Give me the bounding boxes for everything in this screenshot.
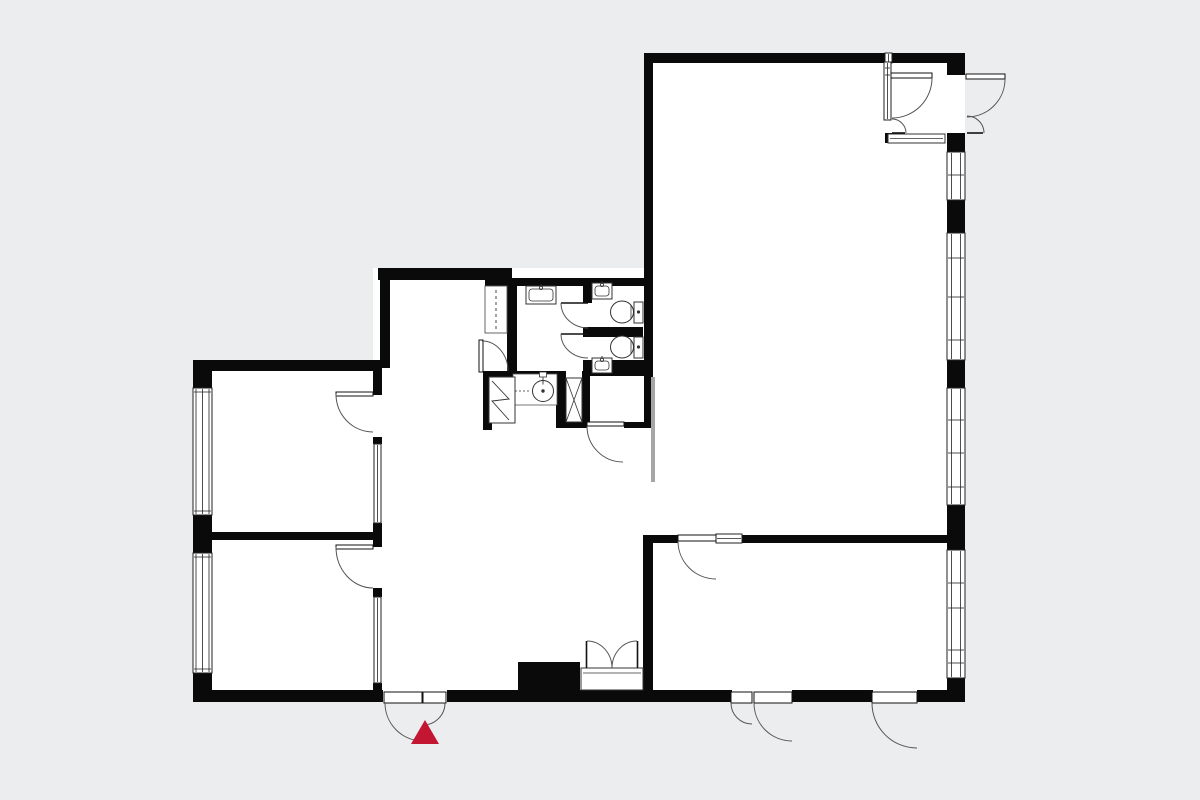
wall-hall-bottom-right bbox=[624, 422, 653, 428]
wall-dining-top-right bbox=[740, 535, 947, 543]
wall-leftrooms-bottom bbox=[193, 690, 382, 702]
wall-left-seg-2 bbox=[193, 515, 212, 553]
door-vestibule-big-leaf bbox=[891, 73, 932, 78]
door-left-room-bottom-leaf bbox=[336, 545, 373, 549]
wall-leftrooms-right-2 bbox=[373, 437, 382, 444]
wall-leftrooms-right-5 bbox=[373, 683, 382, 702]
wall-right-seg-5 bbox=[947, 505, 965, 550]
window-right-3 bbox=[947, 388, 965, 505]
sliding-door-panel bbox=[651, 377, 655, 482]
sink-wc2-basin bbox=[595, 361, 609, 370]
wall-leftrooms-right-1 bbox=[373, 371, 382, 395]
wall-shaft-left bbox=[556, 371, 566, 428]
window-right-2 bbox=[947, 233, 965, 360]
wall-dining-top-left bbox=[643, 535, 678, 543]
floor-plan bbox=[0, 0, 1200, 800]
wall-bottom-seg-3 bbox=[917, 690, 965, 702]
cupboard-body bbox=[581, 668, 643, 690]
wall-wc-divider bbox=[583, 327, 643, 337]
wall-right-seg-3 bbox=[947, 200, 965, 233]
floor-main-room bbox=[644, 53, 965, 702]
toilet-2-flush bbox=[637, 345, 640, 348]
wall-bottom-seg-1 bbox=[643, 690, 732, 702]
wall-leftrooms-divider bbox=[193, 532, 382, 540]
door-main-entrance-small-leaf bbox=[423, 692, 446, 703]
wall-hall-bottom-left bbox=[556, 422, 587, 428]
toilet-1-bowl bbox=[611, 301, 634, 323]
door-hall-leaf bbox=[587, 422, 624, 426]
wall-leftrooms-top bbox=[193, 360, 382, 371]
door-terrace2-leaf bbox=[872, 692, 917, 703]
door-side-entrance-big-leaf bbox=[966, 74, 1005, 79]
wall-right-seg-4 bbox=[947, 360, 965, 388]
sink-wc1-basin bbox=[595, 286, 609, 296]
wall-dining-left bbox=[643, 543, 653, 690]
wall-bath-top-thin bbox=[505, 278, 653, 286]
wall-shaft-right bbox=[582, 371, 590, 422]
door-dining-leaf bbox=[678, 535, 716, 541]
wall-left-seg-1 bbox=[193, 360, 212, 388]
door-terrace1-small-leaf bbox=[731, 692, 752, 703]
window-right-4 bbox=[947, 550, 965, 678]
sink-bathroom-basin bbox=[529, 289, 553, 301]
wall-leftrooms-right-4 bbox=[373, 588, 382, 597]
wall-bottom-seg-2 bbox=[792, 690, 873, 702]
laundry-basin-tap-icon bbox=[540, 372, 547, 377]
floor-left-rooms bbox=[193, 360, 382, 702]
wall-middle-left-upper bbox=[380, 268, 390, 368]
wall-wc-left-upper bbox=[583, 280, 592, 303]
wall-right-seg-2 bbox=[947, 133, 965, 152]
toilet-1-flush bbox=[637, 310, 640, 313]
toilet-2-bowl bbox=[611, 336, 634, 358]
wall-left-seg-3 bbox=[193, 673, 212, 702]
door-main-entrance-big-leaf bbox=[384, 692, 422, 703]
door-left-room-top-leaf bbox=[336, 392, 373, 396]
wall-leftrooms-right-3 bbox=[373, 523, 382, 547]
floor-plan-page bbox=[0, 0, 1200, 800]
window-right-1 bbox=[947, 152, 965, 200]
wall-bottom-middle bbox=[447, 690, 643, 702]
chimney-block bbox=[518, 662, 580, 690]
door-utility-leaf bbox=[479, 340, 483, 372]
door-terrace1-big-leaf bbox=[754, 692, 792, 703]
wall-right-seg-1 bbox=[947, 53, 965, 75]
wall-top-main-left bbox=[644, 53, 885, 63]
laundry-basin-drain bbox=[541, 389, 544, 392]
wall-bath1-left bbox=[507, 286, 517, 371]
